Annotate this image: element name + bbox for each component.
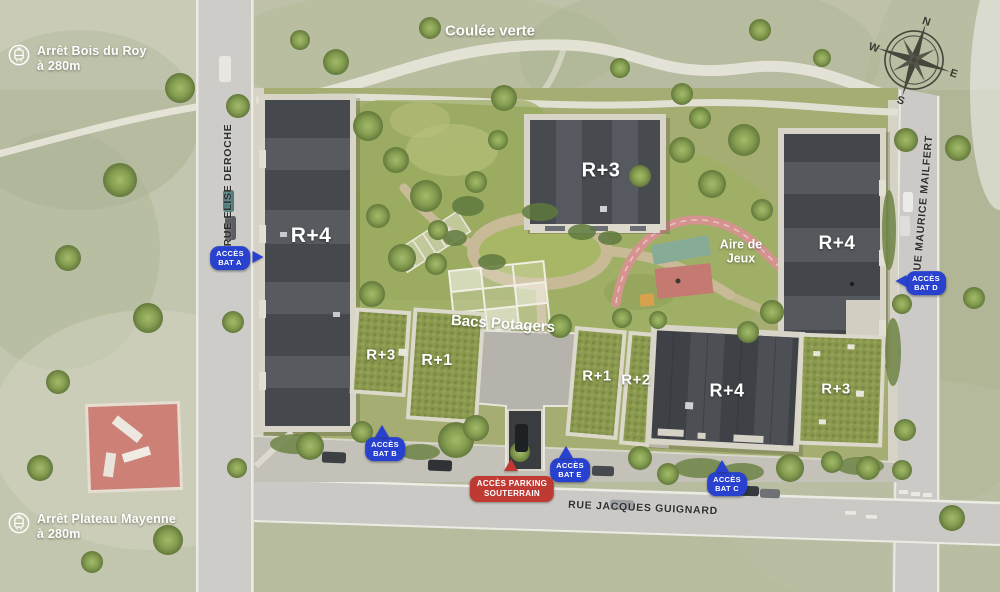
building-label-west: R+4: [291, 224, 332, 248]
building-label-southwest-b: R+1: [421, 352, 452, 370]
access-label-parking: ACCÈS PARKING SOUTERRAIN: [470, 476, 554, 502]
transit-stop-distance: à 280m: [37, 527, 176, 542]
compass-rose: N E S W: [866, 8, 962, 112]
access-label-bat-e: ACCÈS BAT E: [550, 458, 590, 482]
access-label-bat-c: ACCÈS BAT C: [707, 472, 747, 496]
access-arrow-bat-b: [375, 425, 389, 437]
transit-stop-name: Arrêt Plateau Mayenne: [37, 512, 176, 527]
access-arrow-bat-e: [559, 446, 573, 458]
masterplan-canvas: Arrêt Bois du Roy à 280m Arrêt Plateau M…: [0, 0, 1000, 592]
access-label-bat-b: ACCÈS BAT B: [365, 437, 405, 461]
tram-icon: [8, 44, 30, 66]
bacs-potagers-label: Bacs Potagers: [450, 312, 555, 336]
building-label-south-b: R+2: [621, 372, 650, 389]
compass-n: N: [921, 15, 932, 29]
access-arrow-parking: [504, 459, 518, 471]
transit-stop-plateau-mayenne: Arrêt Plateau Mayenne à 280m: [8, 512, 176, 542]
access-arrow-bat-a: [253, 251, 264, 263]
compass-s: S: [895, 94, 906, 108]
access-arrow-bat-c: [715, 460, 729, 472]
transit-stop-name: Arrêt Bois du Roy: [37, 44, 147, 59]
street-rue-jacques-guignard: RUE JACQUES GUIGNARD: [568, 499, 718, 518]
building-label-north: R+3: [582, 160, 621, 183]
building-label-southwest-a: R+3: [366, 347, 395, 364]
building-label-southeast-a: R+4: [709, 381, 744, 402]
coulee-verte-label: Coulée verte: [445, 23, 535, 40]
building-label-east: R+4: [819, 233, 856, 255]
aire-de-jeux-label: Aire de Jeux: [720, 238, 762, 267]
compass-w: W: [867, 41, 881, 56]
tram-icon: [8, 512, 30, 534]
building-label-south-a: R+1: [582, 368, 611, 385]
compass-e: E: [948, 67, 959, 81]
transit-stop-distance: à 280m: [37, 59, 147, 74]
access-label-bat-a: ACCÈS BAT A: [210, 246, 250, 270]
transit-stop-bois-du-roy: Arrêt Bois du Roy à 280m: [8, 44, 147, 74]
access-arrow-bat-d: [896, 275, 907, 287]
street-rue-elise-deroche: RUE ELISE DEROCHE: [222, 124, 234, 247]
access-label-bat-d: ACCÈS BAT D: [906, 271, 946, 295]
building-label-southeast-b: R+3: [821, 381, 850, 398]
street-rue-maurice-mailfert: RUE MAURICE MAILFERT: [911, 135, 936, 280]
